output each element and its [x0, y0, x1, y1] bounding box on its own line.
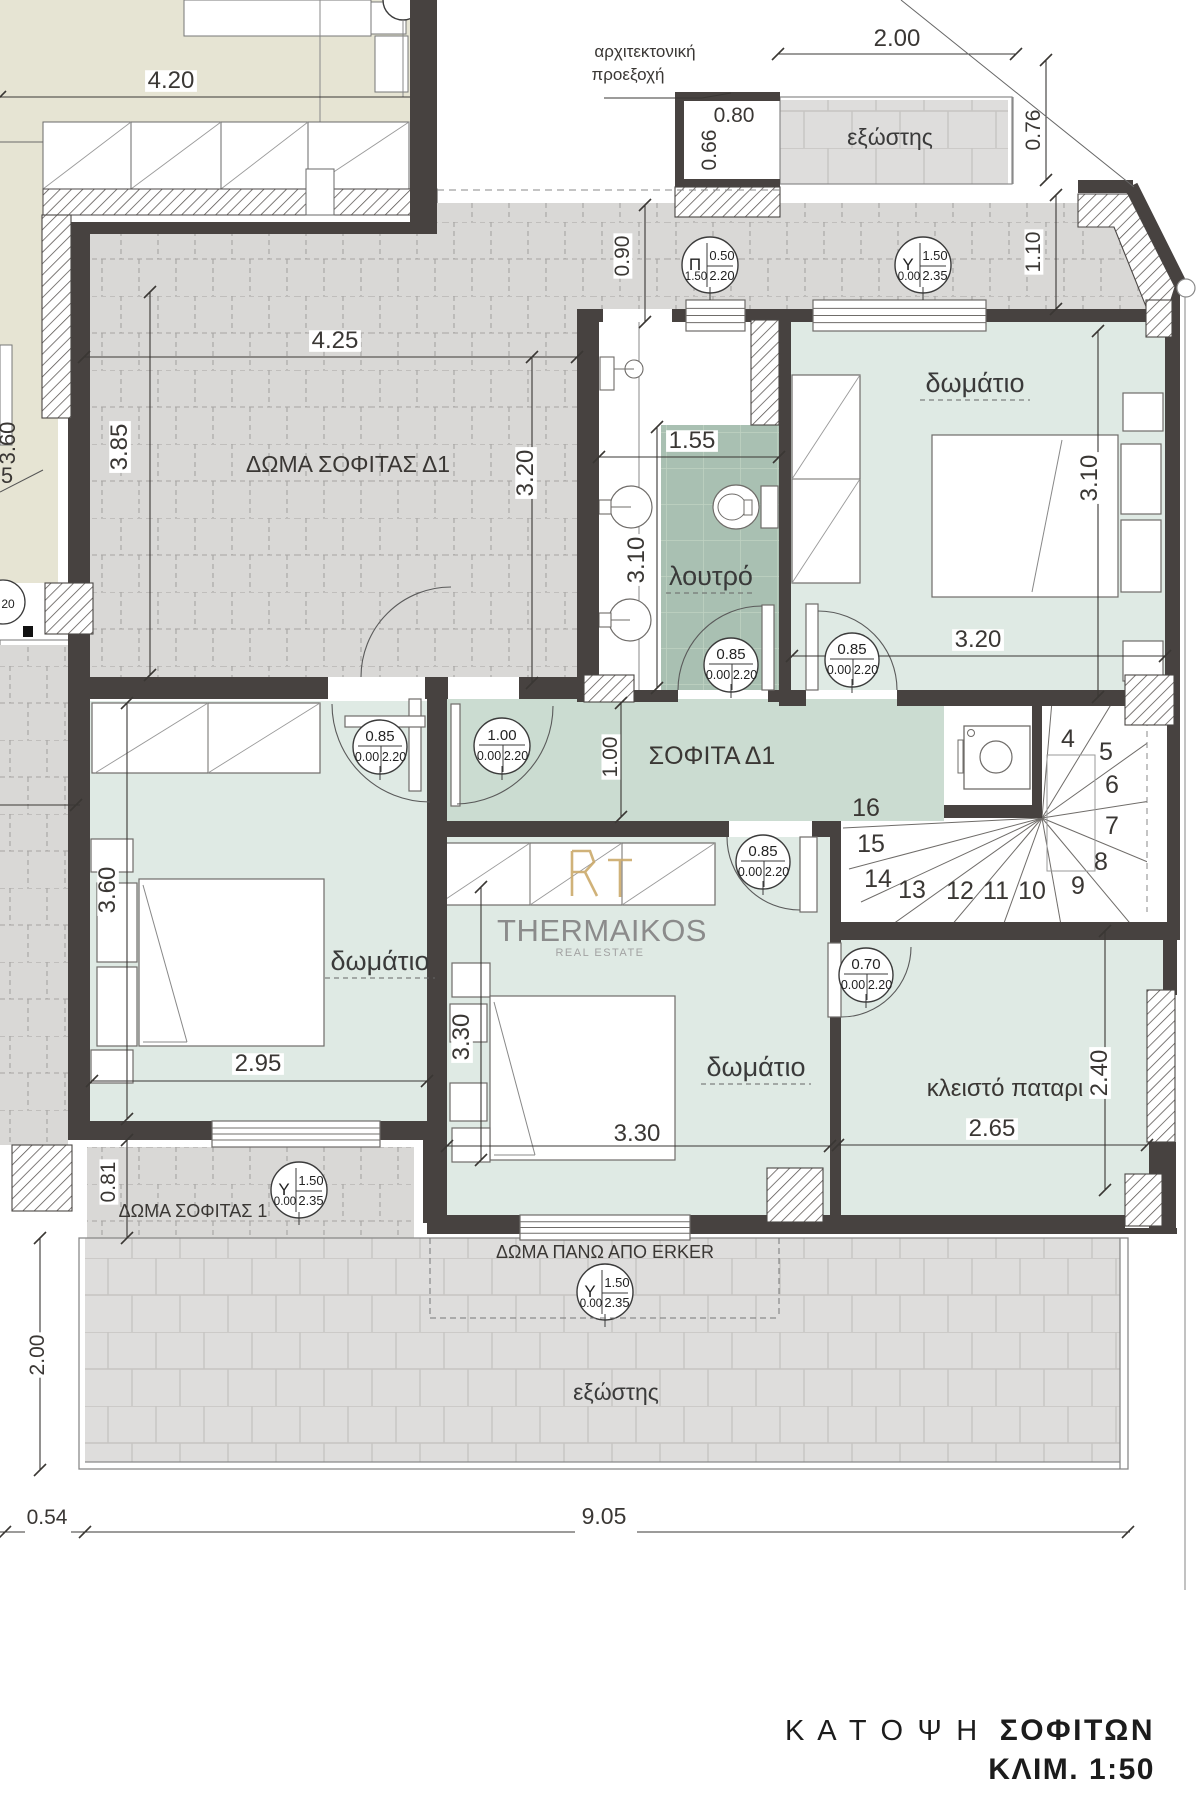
svg-text:λουτρό: λουτρό — [669, 561, 753, 591]
svg-text:αρχιτεκτονική: αρχιτεκτονική — [594, 42, 695, 61]
svg-text:εξώστης: εξώστης — [847, 124, 933, 150]
svg-text:2.20: 2.20 — [504, 749, 528, 763]
svg-text:1.10: 1.10 — [1022, 232, 1045, 273]
svg-text:ΔΩΜΑ ΣΟΦΙΤΑΣ Δ1: ΔΩΜΑ ΣΟΦΙΤΑΣ Δ1 — [246, 451, 450, 477]
svg-text:3.85: 3.85 — [106, 424, 133, 471]
svg-text:3.30: 3.30 — [614, 1120, 661, 1147]
svg-text:3.60: 3.60 — [0, 422, 20, 465]
svg-text:ΣΟΦΙΤΩΝ: ΣΟΦΙΤΩΝ — [1000, 1714, 1155, 1747]
svg-text:0.85: 0.85 — [837, 641, 866, 658]
svg-text:0.54: 0.54 — [27, 1506, 68, 1529]
svg-text:0.66: 0.66 — [698, 130, 721, 171]
svg-text:3.60: 3.60 — [94, 867, 121, 914]
svg-text:4.25: 4.25 — [312, 327, 359, 354]
svg-text:2.20: 2.20 — [733, 668, 757, 682]
svg-text:δωμάτιο: δωμάτιο — [926, 368, 1025, 398]
svg-text:δωμάτιο: δωμάτιο — [331, 946, 430, 976]
svg-text:5: 5 — [1099, 738, 1113, 766]
svg-text:0.00: 0.00 — [477, 749, 501, 763]
svg-text:11: 11 — [983, 877, 1009, 905]
svg-text:7: 7 — [1105, 812, 1119, 840]
svg-text:3.10: 3.10 — [1076, 455, 1103, 502]
svg-text:0.81: 0.81 — [97, 1162, 120, 1203]
svg-text:0.00: 0.00 — [706, 668, 730, 682]
svg-text:12: 12 — [946, 877, 974, 905]
svg-text:ΚΛΙΜ. 1:50: ΚΛΙΜ. 1:50 — [988, 1753, 1155, 1786]
svg-text:9: 9 — [1071, 872, 1085, 900]
svg-text:ΣΟΦΙΤΑ Δ1: ΣΟΦΙΤΑ Δ1 — [649, 742, 776, 770]
svg-text:2.35: 2.35 — [604, 1295, 629, 1310]
svg-text:2.40: 2.40 — [1086, 1050, 1113, 1097]
svg-text:15: 15 — [857, 830, 885, 858]
svg-text:εξώστης: εξώστης — [573, 1379, 659, 1405]
svg-text:2.20: 2.20 — [382, 750, 406, 764]
svg-text:4.20: 4.20 — [148, 67, 195, 94]
svg-text:2.20: 2.20 — [854, 663, 878, 677]
svg-text:1.50: 1.50 — [298, 1173, 323, 1188]
svg-text:THERMAIKOS: THERMAIKOS — [497, 913, 707, 948]
svg-text:δωμάτιο: δωμάτιο — [707, 1052, 806, 1082]
svg-text:1.00: 1.00 — [599, 737, 622, 778]
svg-text:0.00: 0.00 — [827, 663, 851, 677]
svg-text:0.90: 0.90 — [611, 236, 634, 277]
svg-text:3.10: 3.10 — [623, 537, 650, 584]
svg-text:0.70: 0.70 — [851, 956, 880, 973]
svg-text:2.00: 2.00 — [874, 25, 921, 52]
svg-text:3.30: 3.30 — [448, 1014, 475, 1061]
svg-text:2.20: 2.20 — [765, 865, 789, 879]
svg-text:6: 6 — [1105, 771, 1119, 799]
svg-text:0.00: 0.00 — [738, 865, 762, 879]
svg-text:0.00: 0.00 — [841, 978, 865, 992]
svg-text:13: 13 — [898, 876, 926, 904]
svg-text:0.85: 0.85 — [716, 646, 745, 663]
svg-text:1.50: 1.50 — [685, 271, 707, 283]
svg-text:1.00: 1.00 — [487, 727, 516, 744]
svg-text:8: 8 — [1094, 848, 1108, 876]
svg-text:9.05: 9.05 — [582, 1503, 627, 1529]
svg-text:10: 10 — [1018, 877, 1046, 905]
svg-text:3.20: 3.20 — [512, 450, 539, 497]
svg-text:14: 14 — [864, 865, 892, 893]
svg-text:0.50: 0.50 — [709, 248, 734, 263]
svg-text:3.20: 3.20 — [955, 626, 1002, 653]
svg-text:0.80: 0.80 — [714, 104, 755, 127]
svg-text:1.55: 1.55 — [669, 427, 716, 454]
svg-text:Κ Α Τ Ο Ψ Η: Κ Α Τ Ο Ψ Η — [785, 1715, 980, 1747]
svg-text:2.95: 2.95 — [235, 1050, 282, 1077]
svg-text:2.65: 2.65 — [969, 1115, 1016, 1142]
svg-text:προεξοχή: προεξοχή — [592, 65, 665, 84]
svg-text:REAL ESTATE: REAL ESTATE — [555, 947, 644, 959]
svg-text:ΔΩΜΑ ΣΟΦΙΤΑΣ 1: ΔΩΜΑ ΣΟΦΙΤΑΣ 1 — [119, 1201, 268, 1221]
svg-text:0.85: 0.85 — [748, 843, 777, 860]
svg-text:0.85: 0.85 — [365, 728, 394, 745]
svg-text:ΔΩΜΑ ΠΑΝΩ ΑΠΟ ERKER: ΔΩΜΑ ΠΑΝΩ ΑΠΟ ERKER — [496, 1242, 714, 1262]
svg-text:2.35: 2.35 — [298, 1193, 323, 1208]
svg-text:κλειστό παταρι: κλειστό παταρι — [927, 1075, 1083, 1102]
svg-text:0.00: 0.00 — [274, 1196, 296, 1208]
svg-text:0.00: 0.00 — [580, 1298, 602, 1310]
svg-text:2.35: 2.35 — [922, 268, 947, 283]
svg-text:2.20: 2.20 — [868, 978, 892, 992]
svg-text:16: 16 — [852, 794, 880, 822]
svg-text:1.50: 1.50 — [922, 248, 947, 263]
svg-text:0.76: 0.76 — [1022, 110, 1045, 151]
svg-text:20: 20 — [1, 597, 15, 611]
svg-text:2.00: 2.00 — [26, 1335, 49, 1376]
svg-text:1.50: 1.50 — [604, 1275, 629, 1290]
svg-text:0.00: 0.00 — [898, 271, 920, 283]
svg-text:5: 5 — [1, 463, 13, 488]
svg-text:0.00: 0.00 — [355, 750, 379, 764]
svg-text:4: 4 — [1061, 725, 1075, 753]
svg-text:2.20: 2.20 — [709, 268, 734, 283]
